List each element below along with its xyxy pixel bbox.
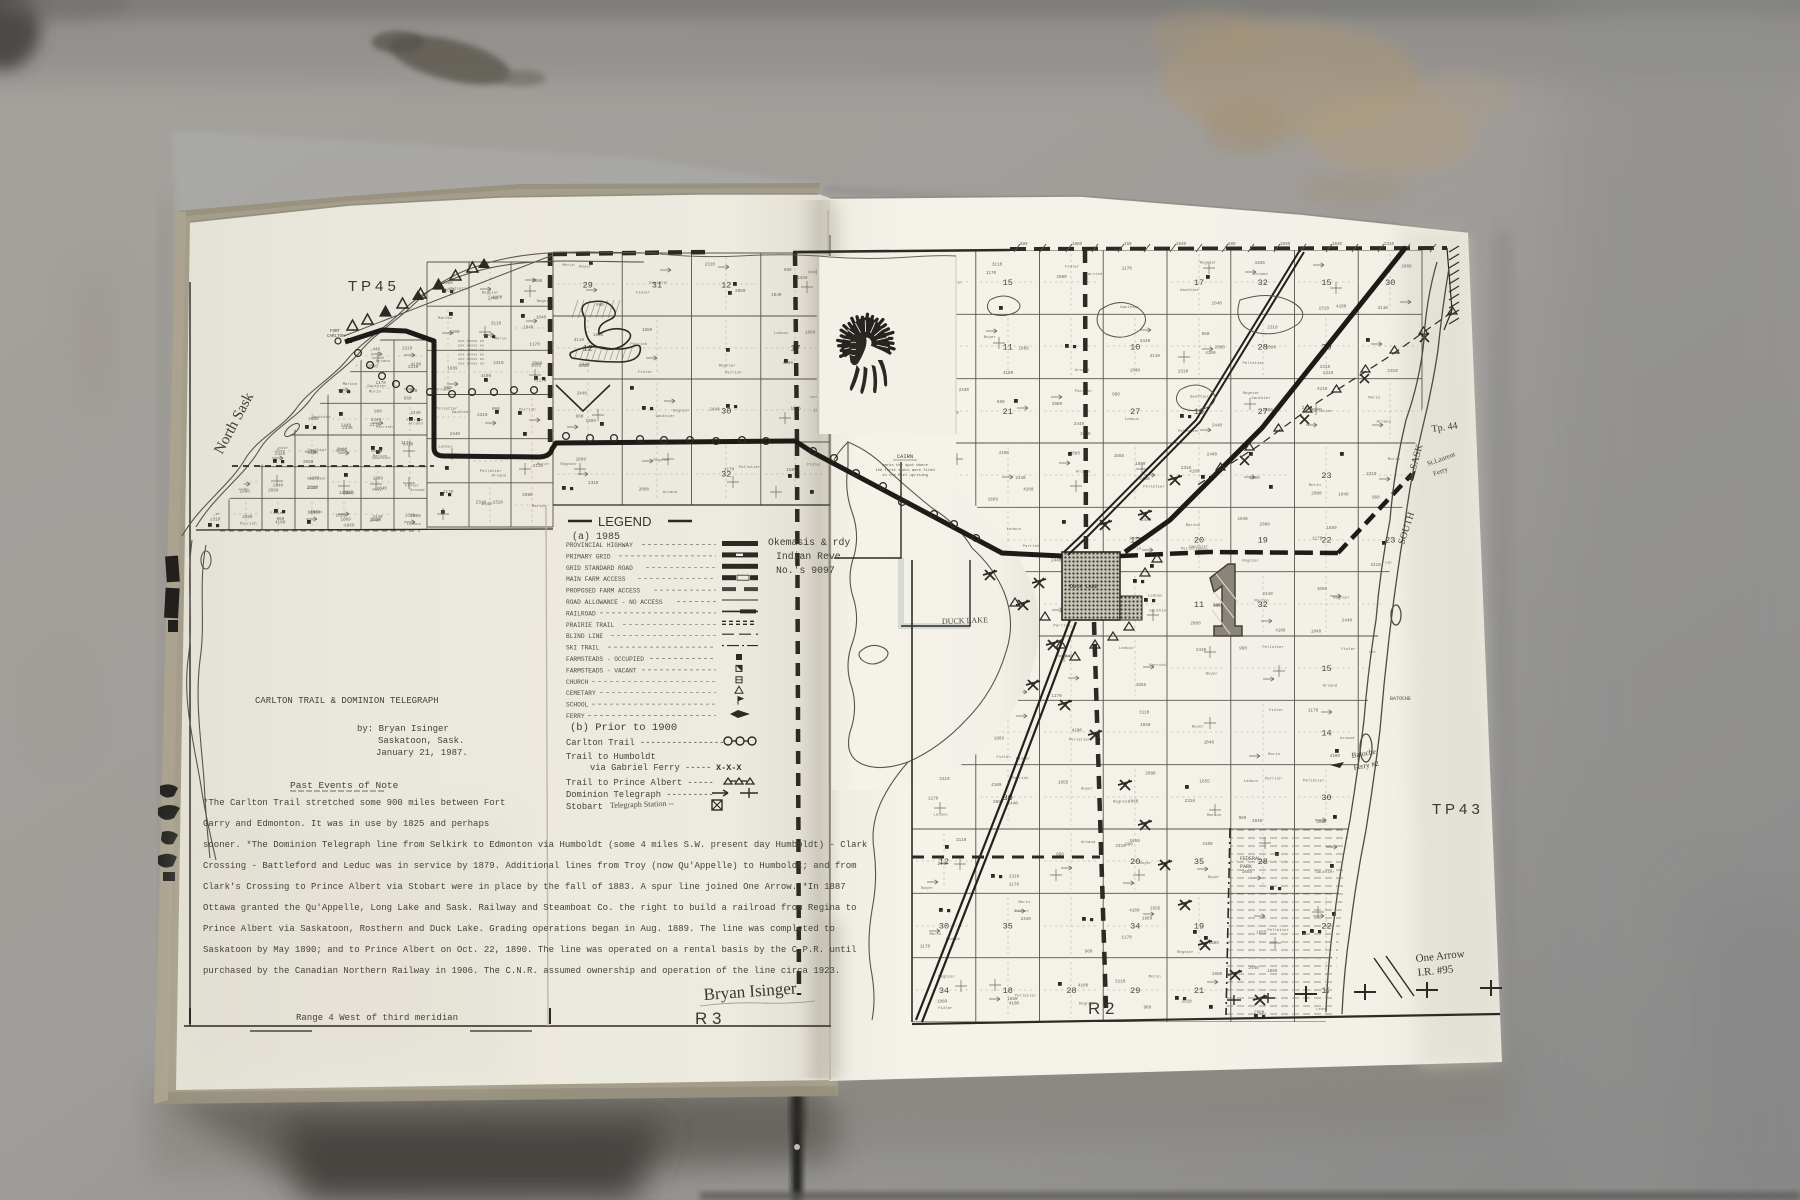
svg-text:Trail to Humboldt: Trail to Humboldt [566, 752, 656, 762]
svg-text:2080: 2080 [579, 364, 590, 369]
svg-text:Regnier: Regnier [1242, 558, 1259, 563]
svg-text:4100: 4100 [1189, 470, 1200, 475]
svg-text:2080: 2080 [735, 289, 746, 294]
svg-text:35: 35 [1003, 922, 1013, 932]
svg-text:GRID STANDARD ROAD: GRID STANDARD ROAD [566, 565, 633, 572]
svg-text:2440: 2440 [709, 407, 720, 412]
svg-text:1040: 1040 [771, 293, 782, 298]
svg-text:1889: 1889 [994, 736, 1005, 741]
svg-text:SKI TRAIL: SKI TRAIL [566, 645, 600, 652]
svg-text:960: 960 [1213, 604, 1221, 609]
svg-text:22: 22 [1321, 922, 1331, 932]
svg-text:3110: 3110 [491, 322, 502, 327]
svg-text:2310: 2310 [1178, 370, 1189, 375]
svg-text:FORT: FORT [330, 330, 341, 334]
svg-text:3110: 3110 [956, 838, 967, 843]
svg-text:1889: 1889 [1142, 916, 1153, 921]
svg-text:1170: 1170 [1308, 708, 1319, 713]
svg-text:Gauthier: Gauthier [655, 414, 675, 419]
svg-text:*The Carlton Trail stretched s: *The Carlton Trail stretched some 900 mi… [203, 798, 505, 808]
svg-text:31: 31 [652, 281, 662, 291]
svg-text:Boyer: Boyer [372, 488, 385, 493]
svg-text:Gauthier: Gauthier [372, 456, 392, 461]
svg-text:1040: 1040 [1280, 243, 1291, 247]
svg-text:Prince Albert via Saskatoon, R: Prince Albert via Saskatoon, Rosthern an… [203, 924, 835, 934]
svg-text:4100: 4100 [1202, 842, 1213, 847]
svg-text:29: 29 [1130, 986, 1140, 996]
svg-text:17: 17 [1194, 278, 1204, 288]
svg-text:RAILROAD: RAILROAD [566, 610, 596, 617]
svg-text:Marion: Marion [438, 316, 453, 321]
svg-text:Parrish: Parrish [725, 371, 742, 376]
svg-text:2440: 2440 [1051, 558, 1062, 563]
svg-text:by: Bryan Isinger: by: Bryan Isinger [357, 724, 449, 734]
svg-text:PROVINCIAL HIGHWAY: PROVINCIAL HIGHWAY [566, 542, 633, 549]
svg-text:1170: 1170 [1009, 883, 1020, 888]
svg-text:34: 34 [939, 986, 949, 996]
svg-text:2080: 2080 [303, 460, 314, 465]
svg-text:1040: 1040 [1204, 741, 1215, 746]
svg-text:2080: 2080 [445, 288, 456, 293]
svg-text:Marion: Marion [1207, 813, 1222, 818]
svg-text:Clark's Crossing to Prince Alb: Clark's Crossing to Prince Albert via St… [203, 882, 846, 892]
svg-text:27: 27 [1258, 407, 1268, 417]
svg-text:sooner. *The Dominion Telegra: sooner. *The Dominion Telegraph line fro… [203, 840, 867, 850]
svg-text:18: 18 [1003, 986, 1013, 996]
svg-text:1040: 1040 [1176, 243, 1187, 247]
svg-text:1655: 1655 [1242, 870, 1253, 875]
svg-text:Pelletier: Pelletier [1303, 778, 1325, 783]
svg-text:DUCK LAKE: DUCK LAKE [1070, 584, 1098, 590]
svg-text:T P 4 5: T P 4 5 [348, 278, 396, 295]
svg-text:960: 960 [997, 400, 1005, 405]
svg-text:Boyer: Boyer [1081, 786, 1094, 791]
svg-text:Morin: Morin [537, 462, 550, 467]
svg-text:3110: 3110 [574, 338, 585, 343]
svg-text:32: 32 [1258, 278, 1268, 288]
svg-text:1655: 1655 [1317, 587, 1328, 592]
svg-text:Indian Reve: Indian Reve [776, 551, 841, 562]
svg-text:2440: 2440 [1140, 339, 1151, 344]
svg-text:Pelletier: Pelletier [1311, 409, 1333, 414]
svg-text:2310: 2310 [477, 413, 488, 418]
svg-text:1889: 1889 [988, 498, 999, 503]
svg-text:1889: 1889 [1326, 526, 1337, 531]
svg-text:Morin: Morin [1268, 752, 1281, 757]
svg-text:960: 960 [1112, 393, 1120, 398]
svg-text:2310: 2310 [1323, 371, 1334, 376]
svg-text:Parrish: Parrish [376, 425, 393, 430]
svg-text:Boyer: Boyer [1208, 875, 1221, 880]
svg-text:2310: 2310 [493, 361, 504, 366]
svg-text:Regnier: Regnier [560, 462, 577, 467]
svg-text:xxx xxxxx xx: xxx xxxxx xx [458, 345, 484, 349]
svg-text:Trail to Prince Albert -----: Trail to Prince Albert ----- [566, 778, 714, 788]
svg-text:1040: 1040 [1212, 302, 1223, 307]
svg-text:Gauthier: Gauthier [1149, 608, 1169, 613]
svg-text:Dominion Telegraph ---------: Dominion Telegraph --------- [566, 790, 714, 800]
svg-text:Pelletier: Pelletier [1069, 737, 1091, 742]
svg-text:Parrish: Parrish [1012, 776, 1029, 781]
svg-text:10: 10 [1130, 343, 1140, 353]
svg-text:1655: 1655 [1114, 454, 1125, 459]
svg-text:19: 19 [1194, 922, 1204, 932]
svg-text:Regnier: Regnier [1200, 260, 1217, 265]
svg-text:Parrish: Parrish [1023, 544, 1040, 549]
svg-text:2440: 2440 [371, 418, 382, 423]
svg-text:960: 960 [1143, 1005, 1151, 1010]
svg-text:R 2: R 2 [1088, 999, 1114, 1018]
svg-text:1889: 1889 [586, 419, 597, 424]
svg-text:Pelletier: Pelletier [1262, 645, 1284, 650]
svg-text:Arcand: Arcand [435, 388, 450, 393]
svg-text:Ledoux: Ledoux [438, 445, 453, 450]
svg-text:2440: 2440 [1207, 452, 1218, 457]
svg-text:2080: 2080 [442, 281, 453, 286]
svg-text:MAIN FARM ACCESS: MAIN FARM ACCESS [566, 576, 626, 583]
svg-text:FARMSTEADS - VACANT: FARMSTEADS - VACANT [566, 667, 637, 674]
svg-text:SCHOOL: SCHOOL [566, 702, 589, 709]
svg-text:1880: 1880 [1072, 243, 1083, 247]
svg-text:Pelletier: Pelletier [436, 407, 458, 412]
svg-text:xxx xxxxx xx: xxx xxxxx xx [458, 358, 484, 362]
svg-text:marks the spot where: marks the spot where [882, 463, 928, 468]
svg-text:2310: 2310 [1384, 243, 1395, 247]
svg-text:Pelletier: Pelletier [1267, 928, 1289, 933]
svg-text:35: 35 [1194, 857, 1204, 867]
svg-text:January 21, 1987.: January 21, 1987. [376, 748, 468, 758]
svg-text:4100: 4100 [999, 451, 1010, 456]
svg-text:20: 20 [1130, 857, 1140, 867]
svg-text:2440: 2440 [959, 388, 970, 393]
svg-text:12: 12 [721, 281, 731, 291]
svg-text:2310: 2310 [210, 518, 221, 523]
svg-text:3110: 3110 [992, 262, 1003, 267]
svg-text:Saskatoon by May 1890; and to: Saskatoon by May 1890; and to Prince Alb… [203, 945, 857, 955]
svg-text:Okemasis & rdy: Okemasis & rdy [768, 537, 850, 548]
svg-text:3110: 3110 [1139, 711, 1150, 716]
svg-text:2440: 2440 [342, 426, 353, 431]
svg-text:Pelletier: Pelletier [1015, 993, 1037, 998]
svg-text:FEDERAL: FEDERAL [1240, 856, 1261, 862]
svg-text:960: 960 [784, 268, 792, 273]
svg-text:4100: 4100 [1275, 629, 1286, 634]
svg-text:Fidler: Fidler [1015, 909, 1030, 914]
svg-text:Regnier: Regnier [482, 290, 499, 295]
svg-text:PROPOSED FARM ACCESS: PROPOSED FARM ACCESS [566, 588, 641, 595]
svg-text:2310: 2310 [1009, 875, 1020, 880]
svg-text:Ledoux: Ledoux [1125, 417, 1140, 422]
svg-text:Saskatoon, Sask.: Saskatoon, Sask. [378, 736, 464, 746]
svg-text:4100: 4100 [1336, 304, 1347, 309]
svg-text:960: 960 [576, 414, 584, 419]
svg-text:CEMETARY: CEMETARY [566, 690, 596, 697]
svg-text:1889: 1889 [805, 330, 816, 335]
svg-text:2080: 2080 [1254, 1011, 1265, 1016]
svg-text:Gauthier: Gauthier [312, 415, 332, 420]
svg-text:2310: 2310 [1267, 326, 1278, 331]
svg-text:1655: 1655 [1150, 906, 1161, 911]
svg-text:2310: 2310 [1319, 306, 1330, 311]
svg-text:28: 28 [1066, 986, 1076, 996]
svg-text:4100: 4100 [991, 783, 1002, 788]
svg-text:1170: 1170 [401, 441, 412, 446]
svg-text:1655: 1655 [1199, 779, 1210, 784]
svg-text:Marion: Marion [532, 504, 547, 509]
svg-text:2440: 2440 [273, 483, 284, 488]
svg-text:Morin: Morin [1149, 975, 1162, 980]
svg-text:Ledoux: Ledoux [1148, 593, 1163, 598]
svg-text:29: 29 [583, 281, 593, 291]
svg-text:2310: 2310 [493, 501, 504, 506]
svg-text:1170: 1170 [920, 945, 931, 950]
svg-text:Stobart: Stobart [566, 802, 603, 812]
svg-text:xxx xxxxx xx: xxx xxxxx xx [458, 349, 484, 353]
svg-text:960: 960 [276, 517, 284, 522]
svg-text:Ledoux: Ledoux [1007, 527, 1022, 532]
svg-text:Carlton Trail ----------------: Carlton Trail ---------------- [566, 738, 724, 748]
svg-text:Fidler: Fidler [1269, 708, 1284, 713]
svg-text:Fidler: Fidler [1341, 647, 1356, 652]
svg-text:960: 960 [1372, 495, 1380, 500]
svg-text:1889: 1889 [1135, 462, 1146, 467]
svg-text:Marion: Marion [343, 382, 358, 387]
svg-text:2440: 2440 [1015, 476, 1026, 481]
svg-text:28: 28 [1258, 343, 1268, 353]
svg-text:960: 960 [1085, 950, 1093, 955]
svg-text:1040: 1040 [1130, 368, 1141, 373]
svg-text:2440: 2440 [797, 276, 808, 281]
svg-text:Arcand: Arcand [1081, 840, 1096, 845]
svg-text:the first shots were fired: the first shots were fired [875, 468, 934, 473]
svg-text:1170: 1170 [986, 271, 997, 276]
svg-text:Gauthier: Gauthier [1190, 394, 1210, 399]
svg-text:1170: 1170 [529, 343, 540, 348]
svg-text:1889: 1889 [576, 457, 587, 462]
svg-text:2080: 2080 [1260, 522, 1271, 527]
svg-text:via Gabriel Ferry -----: via Gabriel Ferry ----- [590, 763, 711, 773]
svg-text:in the Riel uprising: in the Riel uprising [882, 473, 928, 478]
svg-text:15: 15 [1003, 278, 1013, 288]
svg-text:1655: 1655 [531, 363, 542, 368]
svg-text:2080: 2080 [268, 489, 279, 494]
svg-text:1040: 1040 [523, 325, 534, 330]
svg-text:Parrish: Parrish [406, 418, 423, 423]
svg-text:2080: 2080 [1056, 275, 1067, 280]
svg-text:1889: 1889 [1007, 997, 1018, 1002]
svg-text:1889: 1889 [344, 524, 355, 529]
svg-text:2440: 2440 [482, 502, 493, 507]
svg-text:2080: 2080 [639, 488, 650, 493]
svg-text:2310: 2310 [1185, 799, 1196, 804]
svg-text:2310: 2310 [705, 262, 716, 267]
svg-text:2440: 2440 [410, 411, 421, 416]
svg-text:14: 14 [1321, 729, 1331, 739]
svg-text:Morin: Morin [1018, 900, 1031, 905]
svg-text:1040: 1040 [1311, 630, 1322, 635]
svg-text:2440: 2440 [1342, 619, 1353, 624]
svg-text:880: 880 [1228, 243, 1236, 247]
svg-text:Fidler: Fidler [807, 463, 822, 468]
svg-text:15: 15 [1321, 664, 1331, 674]
svg-text:PARK: PARK [1240, 864, 1252, 870]
svg-text:Fidler: Fidler [638, 370, 653, 375]
svg-text:DUCK LAKE: DUCK LAKE [942, 615, 988, 626]
svg-text:BLIND LINE: BLIND LINE [566, 633, 603, 640]
svg-text:CAIRN: CAIRN [897, 453, 914, 460]
svg-text:960: 960 [1239, 647, 1247, 652]
svg-text:Boyer: Boyer [1139, 861, 1152, 866]
svg-text:FERRY: FERRY [566, 713, 585, 720]
svg-text:2080: 2080 [1215, 346, 1226, 351]
svg-text:3110: 3110 [1317, 387, 1328, 392]
svg-text:4100: 4100 [481, 374, 492, 379]
svg-text:2310: 2310 [1366, 472, 1377, 477]
svg-text:Regnier: Regnier [1113, 800, 1130, 805]
svg-text:2440: 2440 [1212, 423, 1223, 428]
svg-text:2440: 2440 [577, 392, 588, 397]
svg-text:BATOCHE: BATOCHE [1390, 696, 1411, 702]
svg-text:1170: 1170 [1122, 266, 1133, 271]
svg-text:Past Events of Note: Past Events of Note [290, 780, 399, 791]
svg-text:Arcand: Arcand [492, 474, 507, 479]
svg-text:Boyer: Boyer [984, 335, 997, 340]
svg-text:Ledoux: Ledoux [1244, 779, 1259, 784]
svg-text:2080: 2080 [1190, 622, 1201, 627]
svg-text:No.'s 9097: No.'s 9097 [776, 565, 835, 576]
svg-text:Pelletier: Pelletier [739, 465, 761, 470]
svg-text:Boyer: Boyer [1206, 672, 1219, 677]
svg-text:Fidler: Fidler [1065, 264, 1080, 269]
svg-text:11: 11 [1003, 343, 1013, 353]
svg-text:1040: 1040 [1252, 819, 1263, 824]
svg-text:30: 30 [1321, 793, 1331, 803]
svg-text:Regnier: Regnier [1243, 391, 1260, 396]
svg-text:Gauthier: Gauthier [307, 476, 327, 481]
svg-text:Parrish: Parrish [240, 521, 257, 526]
svg-text:2440: 2440 [1248, 966, 1259, 971]
svg-text:Gauthier: Gauthier [1315, 870, 1335, 875]
svg-text:FARMSTEADS - OCCUPIED: FARMSTEADS - OCCUPIED [566, 656, 644, 663]
svg-text:2080: 2080 [410, 514, 421, 519]
svg-text:4100: 4100 [1003, 371, 1014, 376]
svg-text:2080: 2080 [242, 515, 253, 520]
svg-text:Regnier: Regnier [1333, 596, 1350, 601]
svg-text:Morin: Morin [369, 390, 382, 395]
svg-text:3110: 3110 [939, 777, 950, 782]
svg-text:CARLTON TRAIL & DOMINION TELEG: CARLTON TRAIL & DOMINION TELEGRAPH [255, 696, 439, 706]
svg-text:1889: 1889 [937, 1000, 948, 1005]
svg-text:Ledoux: Ledoux [308, 510, 323, 515]
svg-text:20: 20 [1194, 536, 1204, 546]
svg-text:1170: 1170 [1051, 694, 1062, 699]
svg-text:2310: 2310 [588, 481, 599, 486]
svg-text:Boyer: Boyer [579, 265, 592, 270]
svg-text:1040: 1040 [1237, 517, 1248, 522]
svg-text:4100: 4100 [1078, 984, 1089, 989]
svg-text:Fidler: Fidler [938, 1006, 953, 1011]
svg-text:R 3: R 3 [695, 1009, 721, 1028]
svg-text:1040: 1040 [1338, 492, 1349, 497]
svg-text:2310: 2310 [1115, 844, 1126, 849]
svg-text:Morin: Morin [929, 932, 942, 937]
svg-text:19: 19 [1258, 536, 1268, 546]
svg-text:1040: 1040 [536, 316, 547, 321]
svg-text:Fidler: Fidler [636, 291, 651, 296]
svg-text:2310: 2310 [307, 486, 318, 491]
svg-text:30: 30 [1385, 278, 1395, 288]
svg-text:1889: 1889 [642, 328, 653, 333]
svg-text:Parrish: Parrish [1085, 272, 1102, 277]
svg-text:Crossing - Battleford and Ledu: Crossing - Battleford and Leduc was in s… [203, 861, 857, 871]
svg-text:1040: 1040 [1140, 723, 1151, 728]
svg-text:Morin: Morin [495, 337, 508, 342]
svg-text:1040: 1040 [1332, 243, 1343, 247]
svg-text:ROAD ALLOWANCE - NO ACCESS: ROAD ALLOWANCE - NO ACCESS [566, 599, 663, 606]
svg-text:880: 880 [1020, 243, 1028, 247]
svg-text:X-X-X: X-X-X [716, 763, 742, 773]
svg-text:2440: 2440 [450, 432, 461, 437]
svg-text:PRAIRIE TRAIL: PRAIRIE TRAIL [566, 622, 615, 629]
svg-text:2440: 2440 [370, 519, 381, 524]
svg-text:4100: 4100 [1330, 754, 1341, 759]
svg-text:Marion: Marion [1186, 523, 1201, 528]
svg-text:Arcand: Arcand [1076, 470, 1091, 475]
svg-text:2310: 2310 [343, 490, 354, 495]
svg-text:Gauthier: Gauthier [1180, 288, 1200, 293]
svg-text:4100: 4100 [1023, 488, 1034, 493]
svg-text:Pelletier: Pelletier [480, 469, 502, 474]
svg-text:30: 30 [939, 922, 949, 932]
svg-text:960: 960 [374, 410, 382, 415]
svg-text:3110: 3110 [1150, 354, 1161, 359]
svg-text:Regnier: Regnier [1177, 950, 1194, 955]
svg-text:T P 4 3: T P 4 3 [1432, 801, 1480, 818]
svg-text:Ledoux: Ledoux [774, 331, 789, 336]
svg-text:CHURCH: CHURCH [566, 679, 589, 686]
svg-text:2310: 2310 [1387, 369, 1398, 374]
svg-text:Arcand: Arcand [1340, 736, 1355, 741]
svg-text:Parrish: Parrish [1265, 777, 1282, 782]
svg-text:1655: 1655 [1136, 683, 1147, 688]
svg-text:2440: 2440 [1021, 917, 1032, 922]
svg-text:(b) Prior to 1900: (b) Prior to 1900 [570, 722, 677, 734]
svg-text:160: 160 [1124, 243, 1132, 247]
svg-text:27: 27 [1130, 407, 1140, 417]
svg-text:Arcand: Arcand [663, 490, 678, 495]
svg-text:Morin: Morin [1309, 483, 1322, 488]
svg-text:Morin: Morin [562, 263, 575, 268]
svg-text:purchased by the Canadian Nort: purchased by the Canadian Northern Railw… [203, 966, 840, 976]
svg-text:3110: 3110 [1370, 563, 1381, 568]
svg-text:1170: 1170 [1121, 936, 1132, 941]
svg-text:2440: 2440 [488, 297, 499, 302]
svg-text:Regnier: Regnier [673, 408, 690, 413]
svg-text:Pelletier: Pelletier [1143, 484, 1165, 489]
svg-text:Fidler: Fidler [405, 483, 420, 488]
svg-text:Ledoux: Ledoux [1119, 646, 1134, 651]
svg-text:Pelletier: Pelletier [1242, 361, 1264, 366]
svg-text:960: 960 [1239, 816, 1247, 821]
svg-text:960: 960 [1202, 332, 1210, 337]
svg-text:Arcand: Arcand [1377, 419, 1392, 424]
svg-text:1655: 1655 [1255, 261, 1266, 266]
svg-text:Boyer: Boyer [1192, 725, 1205, 730]
svg-text:Arcand: Arcand [1323, 683, 1338, 688]
svg-text:30: 30 [721, 407, 731, 417]
svg-text:3110: 3110 [1378, 306, 1389, 311]
svg-text:2080: 2080 [1052, 402, 1063, 407]
